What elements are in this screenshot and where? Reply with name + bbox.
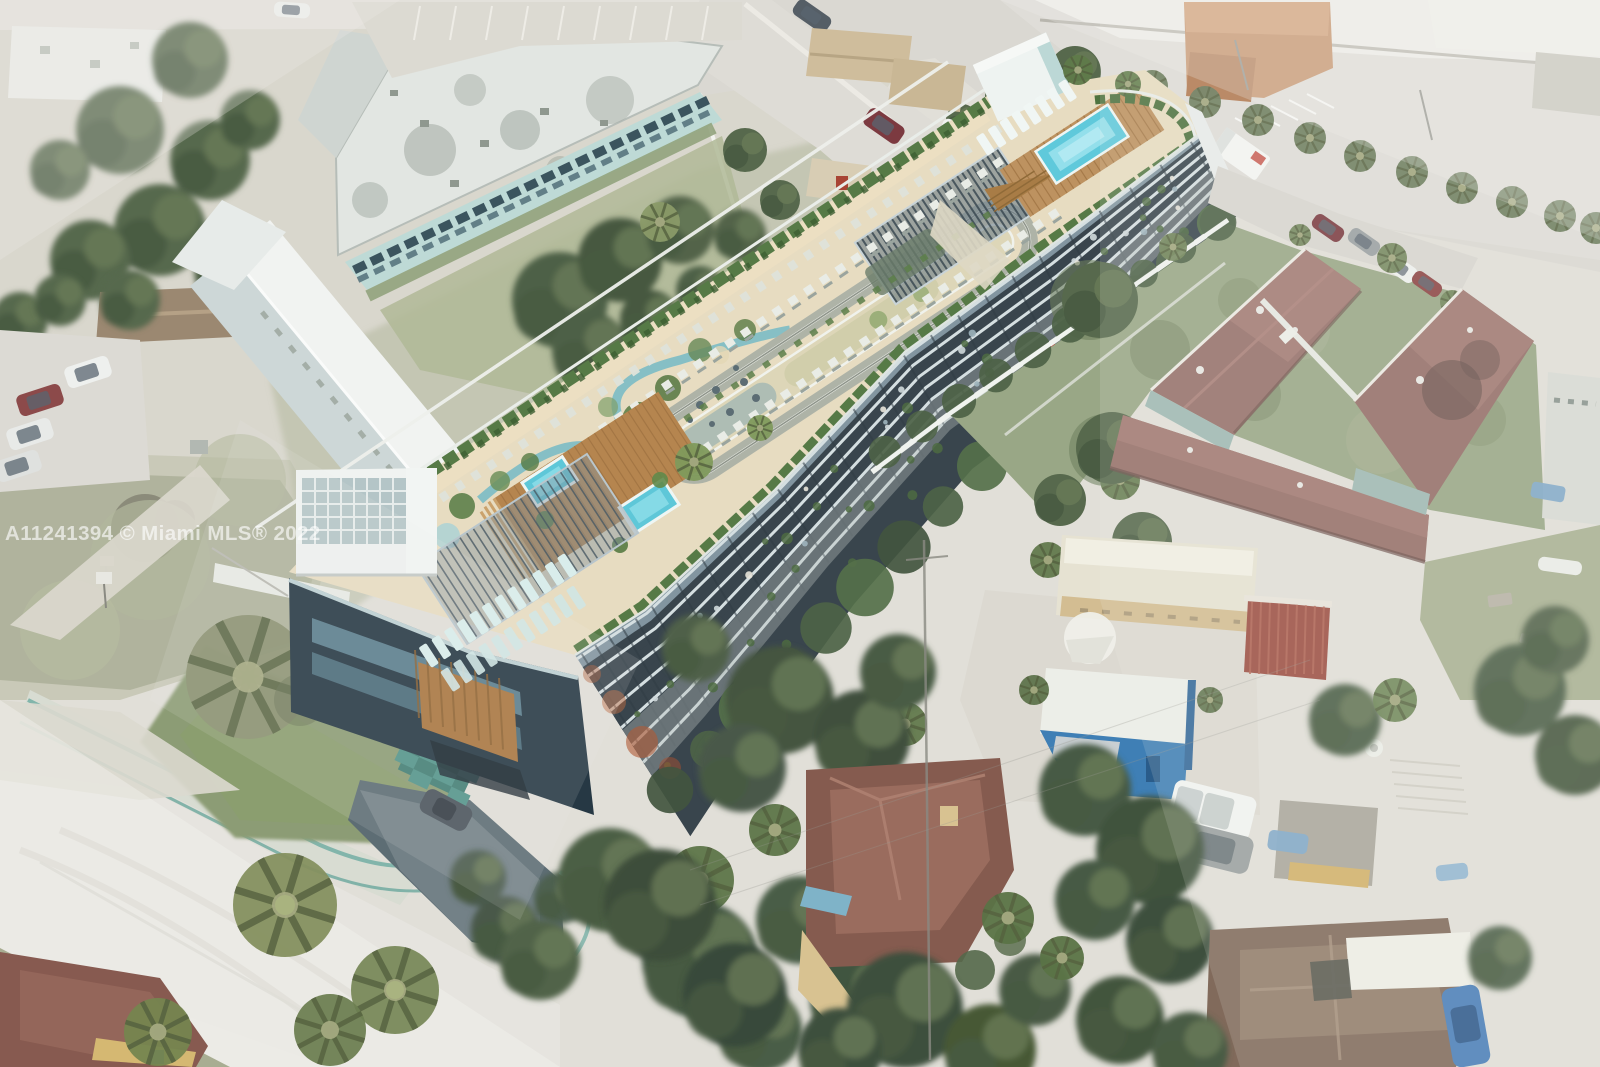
svg-text:A11241394 © Miami MLS® 2022: A11241394 © Miami MLS® 2022	[5, 522, 321, 545]
